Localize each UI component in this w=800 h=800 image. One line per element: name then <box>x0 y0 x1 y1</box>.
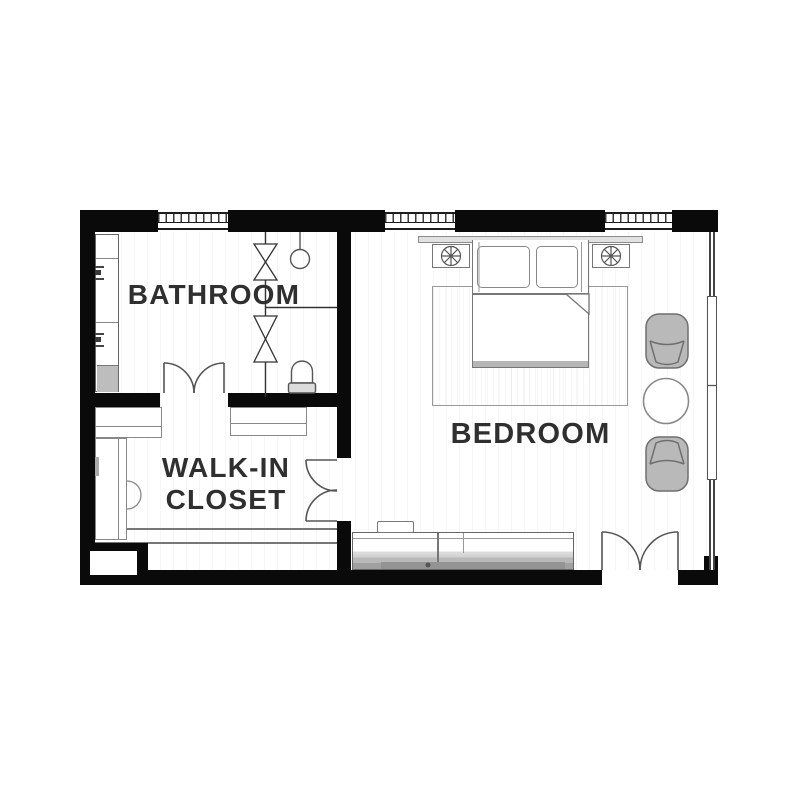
table-lamp-icon <box>602 247 621 266</box>
sheet-fold <box>566 294 589 314</box>
toilet-icon <box>289 361 316 393</box>
double-door-entry <box>602 532 678 570</box>
bed-details <box>479 242 582 292</box>
bathroom-label: BATHROOM <box>108 279 320 311</box>
walk-in-closet-label-line1: WALK-IN <box>131 452 321 484</box>
shower-head-icon <box>291 232 310 269</box>
floor-plan: BATHROOM WALK-IN CLOSET BEDROOM <box>0 0 800 800</box>
dresser-knob <box>426 563 431 568</box>
walk-in-closet-label: WALK-IN CLOSET <box>131 452 321 515</box>
round-table <box>644 379 689 424</box>
armchair-top <box>646 314 688 368</box>
double-door-bathroom <box>164 363 224 393</box>
armchair-bottom <box>646 437 688 491</box>
symbol-overlay <box>0 0 800 800</box>
walk-in-closet-label-line2: CLOSET <box>131 484 321 516</box>
bedroom-label: BEDROOM <box>428 418 633 451</box>
table-lamp-icon <box>442 247 461 266</box>
